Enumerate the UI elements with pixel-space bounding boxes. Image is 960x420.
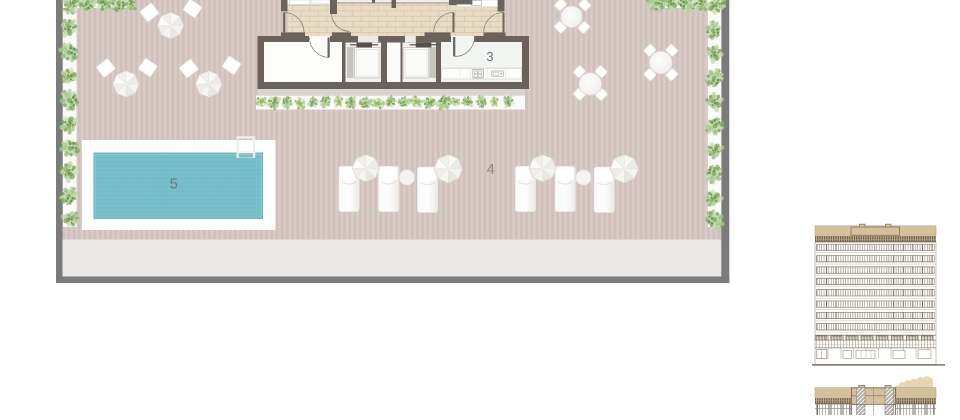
svg-text:4: 4 <box>487 162 495 178</box>
svg-text:3: 3 <box>486 49 493 64</box>
svg-text:5: 5 <box>170 176 178 192</box>
